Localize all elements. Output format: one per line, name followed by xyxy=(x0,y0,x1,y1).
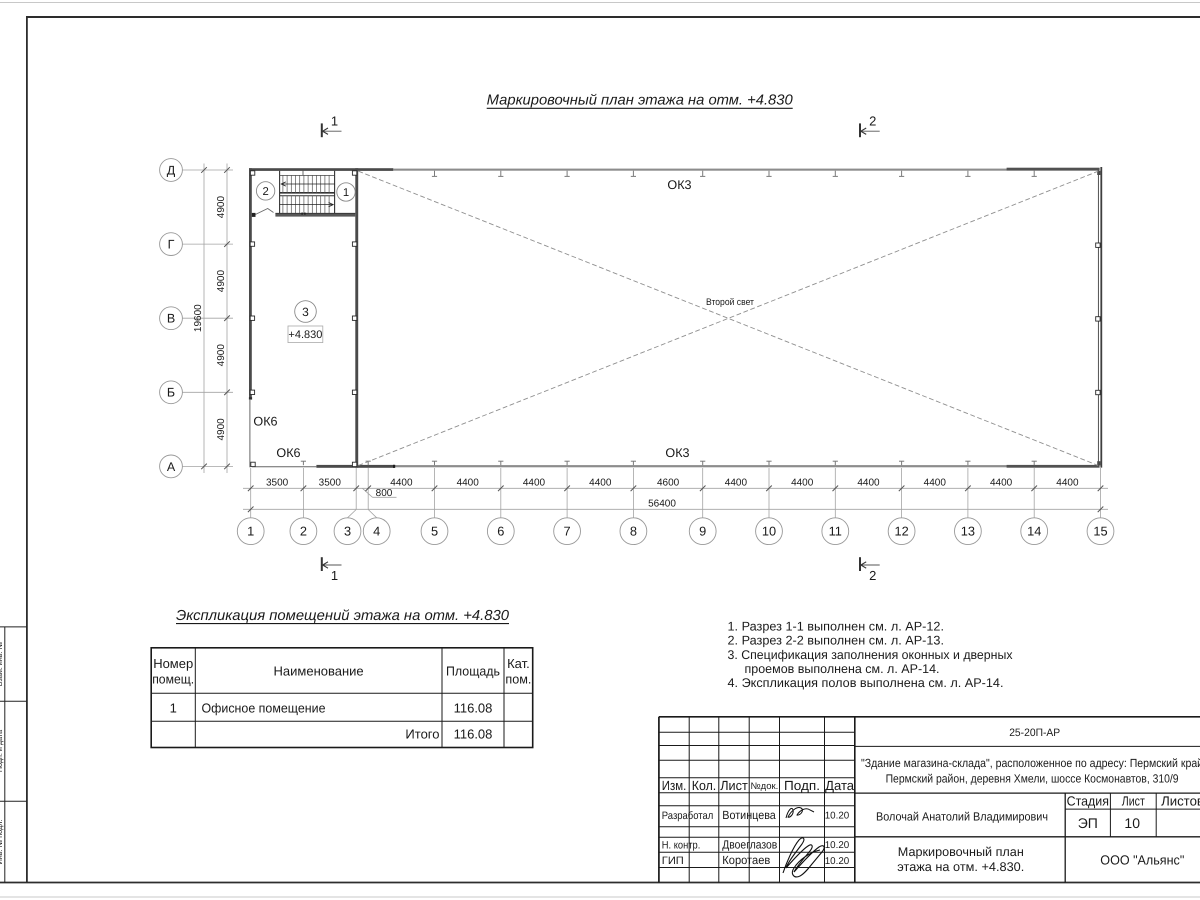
svg-text:ГИП: ГИП xyxy=(662,855,684,867)
svg-text:ОК6: ОК6 xyxy=(276,446,300,460)
svg-text:ООО "Альянс": ООО "Альянс" xyxy=(1100,852,1184,867)
svg-text:4600: 4600 xyxy=(657,477,680,488)
svg-text:25-20П-АР: 25-20П-АР xyxy=(1009,727,1060,739)
svg-text:4400: 4400 xyxy=(523,477,546,488)
svg-text:2: 2 xyxy=(869,113,876,128)
svg-text:+4.830: +4.830 xyxy=(288,329,322,341)
svg-text:этажа на отм. +4.830.: этажа на отм. +4.830. xyxy=(897,860,1024,874)
svg-text:4400: 4400 xyxy=(990,477,1013,488)
svg-text:4900: 4900 xyxy=(216,196,227,219)
svg-text:5: 5 xyxy=(431,524,438,539)
svg-text:ЭП: ЭП xyxy=(1078,815,1098,831)
svg-text:А: А xyxy=(167,460,176,474)
svg-text:Офисное помещение: Офисное помещение xyxy=(202,700,326,715)
svg-text:4400: 4400 xyxy=(589,477,612,488)
svg-text:2. Разрез 2-2 выполнен см. л.: 2. Разрез 2-2 выполнен см. л. АР-13. xyxy=(728,634,945,648)
svg-text:помещ.: помещ. xyxy=(152,672,194,687)
svg-text:Номер: Номер xyxy=(153,656,193,671)
svg-text:4400: 4400 xyxy=(1056,477,1079,488)
svg-text:10.20: 10.20 xyxy=(825,856,850,867)
svg-text:Маркировочный план: Маркировочный план xyxy=(898,845,1024,859)
svg-text:8: 8 xyxy=(630,524,637,539)
svg-text:Лист: Лист xyxy=(1122,793,1145,808)
svg-text:Коротаев: Коротаев xyxy=(722,853,770,867)
svg-text:15: 15 xyxy=(1093,524,1107,539)
svg-text:1: 1 xyxy=(343,187,349,199)
svg-text:Кол.: Кол. xyxy=(692,778,717,793)
svg-text:7: 7 xyxy=(564,524,571,539)
svg-text:4400: 4400 xyxy=(725,477,748,488)
svg-text:2: 2 xyxy=(869,568,876,583)
svg-text:3: 3 xyxy=(344,524,351,539)
svg-text:Изм.: Изм. xyxy=(662,778,687,793)
svg-text:12: 12 xyxy=(894,524,908,539)
svg-text:10: 10 xyxy=(1124,815,1140,831)
svg-text:№док.: №док. xyxy=(750,781,778,792)
svg-text:3. Спецификация заполнения око: 3. Спецификация заполнения оконных и две… xyxy=(728,648,1014,662)
svg-text:ОК3: ОК3 xyxy=(665,446,689,460)
svg-text:Стадия: Стадия xyxy=(1067,793,1109,808)
svg-text:Вотинцева: Вотинцева xyxy=(722,808,776,822)
svg-text:2: 2 xyxy=(262,186,268,198)
svg-text:3500: 3500 xyxy=(319,477,342,488)
svg-text:3: 3 xyxy=(302,305,309,319)
svg-text:10.20: 10.20 xyxy=(825,840,850,851)
svg-text:4. Экспликация полов выполнена: 4. Экспликация полов выполнена см. л. АР… xyxy=(728,676,1004,690)
svg-text:2: 2 xyxy=(300,524,307,539)
svg-text:Маркировочный план этажа на от: Маркировочный план этажа на отм. +4.830 xyxy=(487,92,793,108)
svg-text:56400: 56400 xyxy=(648,498,676,509)
svg-text:Экспликация помещений этажа на: Экспликация помещений этажа на отм. +4.8… xyxy=(176,608,509,624)
svg-text:пом.: пом. xyxy=(505,672,531,687)
svg-text:1. Разрез 1-1 выполнен см. л.: 1. Разрез 1-1 выполнен см. л. АР-12. xyxy=(728,620,945,634)
svg-text:4900: 4900 xyxy=(216,344,227,367)
svg-text:"Здание магазина-склада", расп: "Здание магазина-склада", расположенное … xyxy=(861,756,1200,770)
svg-text:4400: 4400 xyxy=(857,477,880,488)
svg-text:Площадь: Площадь xyxy=(446,663,500,678)
svg-text:В: В xyxy=(167,312,175,326)
svg-text:116.08: 116.08 xyxy=(454,726,493,741)
svg-text:1: 1 xyxy=(170,700,177,715)
svg-text:Дата: Дата xyxy=(825,778,855,793)
svg-text:1: 1 xyxy=(331,568,338,583)
svg-text:116.08: 116.08 xyxy=(454,700,493,715)
svg-text:14: 14 xyxy=(1027,524,1041,539)
svg-text:4: 4 xyxy=(373,524,380,539)
svg-text:4400: 4400 xyxy=(791,477,814,488)
svg-text:19600: 19600 xyxy=(193,304,204,332)
svg-text:4400: 4400 xyxy=(390,477,413,488)
svg-text:Инв. № подл.: Инв. № подл. xyxy=(0,820,4,865)
svg-text:4400: 4400 xyxy=(457,477,480,488)
svg-text:Второй свет: Второй свет xyxy=(706,297,755,308)
svg-text:800: 800 xyxy=(376,488,393,499)
svg-text:Д: Д xyxy=(167,163,176,177)
svg-text:Подп. и дата: Подп. и дата xyxy=(0,730,4,772)
svg-text:Лист: Лист xyxy=(720,778,748,793)
svg-text:Итого: Итого xyxy=(405,726,439,741)
svg-text:ОК3: ОК3 xyxy=(667,178,691,192)
svg-text:1: 1 xyxy=(331,113,338,128)
svg-text:6: 6 xyxy=(497,524,504,539)
svg-text:4900: 4900 xyxy=(216,418,227,441)
svg-text:Пермский район, деревня Хмели,: Пермский район, деревня Хмели, шоссе Кос… xyxy=(886,772,1179,786)
svg-text:ОК6: ОК6 xyxy=(253,414,277,428)
svg-text:Листов: Листов xyxy=(1161,793,1200,808)
svg-text:4400: 4400 xyxy=(924,477,947,488)
svg-text:10.20: 10.20 xyxy=(825,811,850,822)
svg-text:проемов выполнена см. л. АР-14: проемов выполнена см. л. АР-14. xyxy=(745,662,940,676)
svg-text:13: 13 xyxy=(961,524,975,539)
svg-text:3500: 3500 xyxy=(266,477,289,488)
svg-text:Г: Г xyxy=(168,238,175,252)
svg-text:Разработал: Разработал xyxy=(662,810,714,822)
svg-text:Волочай Анатолий Владимирович: Волочай Анатолий Владимирович xyxy=(876,809,1048,823)
svg-text:9: 9 xyxy=(699,524,706,539)
svg-text:Взам. инв. №: Взам. инв. № xyxy=(0,641,4,686)
svg-text:Подп.: Подп. xyxy=(784,778,820,793)
svg-text:10: 10 xyxy=(762,524,776,539)
svg-text:1: 1 xyxy=(247,524,254,539)
svg-text:Двоеглазов: Двоеглазов xyxy=(722,837,777,851)
svg-text:11: 11 xyxy=(829,524,842,539)
svg-text:4900: 4900 xyxy=(216,270,227,293)
svg-text:Кат.: Кат. xyxy=(507,656,530,671)
svg-text:Б: Б xyxy=(167,386,175,400)
svg-text:Н. контр.: Н. контр. xyxy=(662,839,701,851)
svg-text:Наименование: Наименование xyxy=(274,663,364,678)
